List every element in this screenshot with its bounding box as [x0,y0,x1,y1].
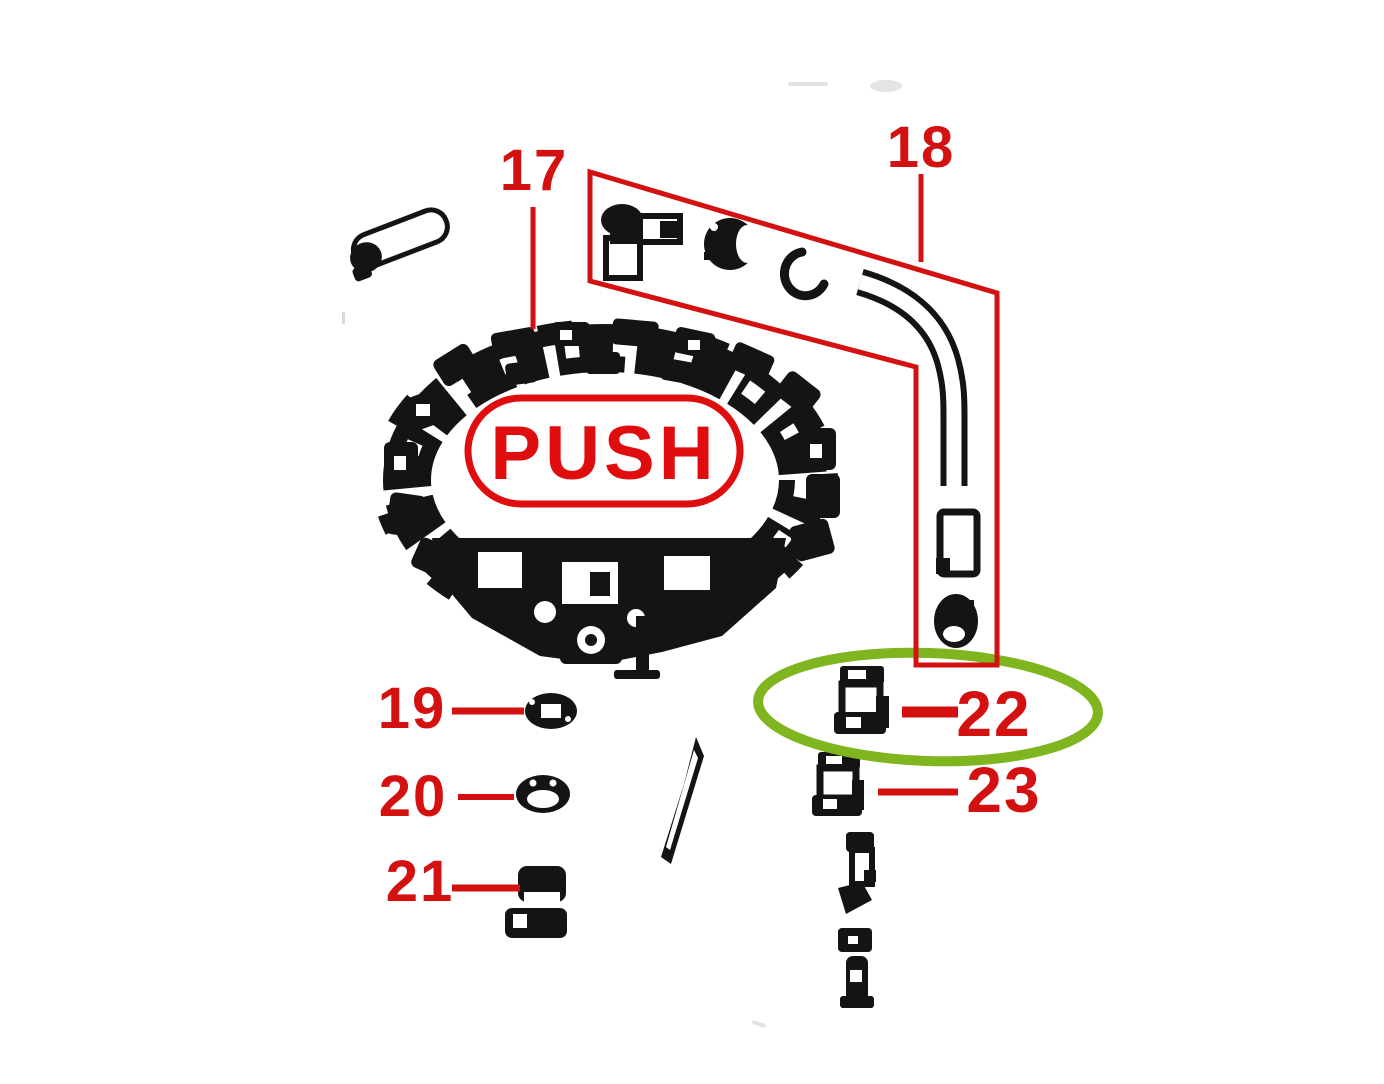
ball-fitting-drawing [704,218,758,270]
callout-19-label: 19 [378,676,447,741]
part-19-drawing [525,693,577,729]
retaining-pin-drawing [341,205,455,282]
parts-diagram: PUSH [0,0,1384,1084]
push-label-text: PUSH [490,411,717,496]
callout-20-label: 20 [379,764,448,829]
callout-17-label: 17 [500,138,569,203]
lower-parts-drawing [838,832,876,1008]
strip-drawing [661,737,704,864]
callout-21-label: 21 [386,849,455,914]
push-label: PUSH [468,398,740,504]
callout-22-label: 22 [956,678,1031,750]
hose-drawing [860,282,954,486]
parts-diagram-canvas: PUSH [0,0,1384,1084]
callout-23-label: 23 [966,754,1041,826]
grommet-drawing [934,594,978,648]
part-20-drawing [516,775,570,813]
part-23-drawing [812,752,864,816]
part-22-drawing [834,666,889,734]
elbow-fitting-drawing [601,204,680,278]
part-21-drawing [505,866,567,938]
clip-ring-drawing [784,252,824,296]
hose-sleeve-drawing [936,512,977,574]
callout-18-label: 18 [887,115,956,180]
